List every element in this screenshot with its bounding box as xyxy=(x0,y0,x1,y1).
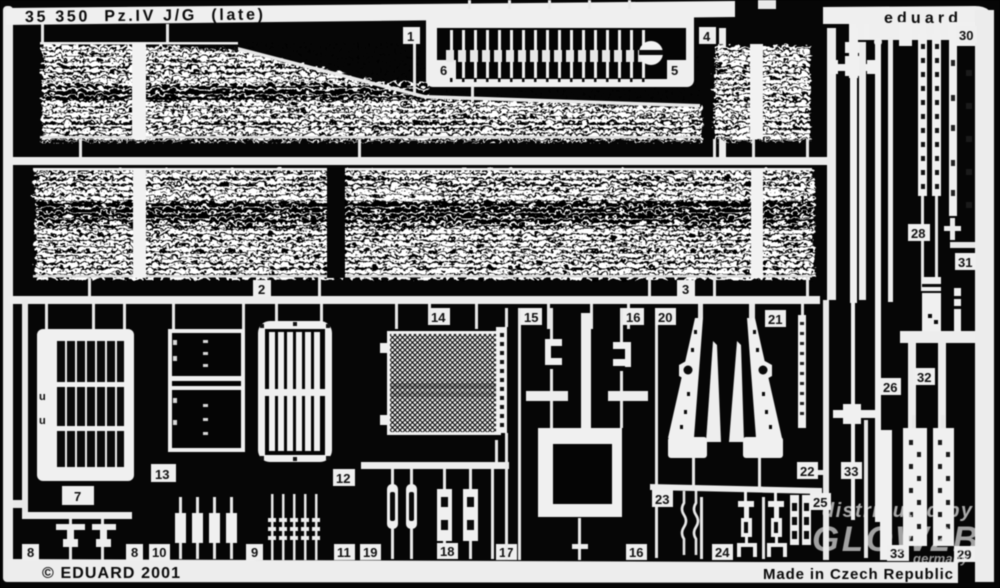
svg-text:11: 11 xyxy=(337,545,351,560)
svg-text:5: 5 xyxy=(671,63,678,78)
svg-text:© EDUARD 2001: © EDUARD 2001 xyxy=(42,565,180,582)
svg-text:germany: germany xyxy=(912,551,969,566)
svg-text:22: 22 xyxy=(800,464,814,479)
svg-text:1: 1 xyxy=(407,29,414,44)
svg-text:33: 33 xyxy=(844,464,858,479)
svg-text:3: 3 xyxy=(682,282,689,297)
svg-text:2: 2 xyxy=(258,282,265,297)
svg-text:19: 19 xyxy=(363,545,377,560)
svg-text:35 350 Pz.IV J/G (late): 35 350 Pz.IV J/G (late) xyxy=(25,7,263,26)
svg-text:15: 15 xyxy=(524,310,538,325)
svg-text:6: 6 xyxy=(440,63,447,78)
svg-text:distributed by: distributed by xyxy=(822,500,973,522)
svg-text:20: 20 xyxy=(658,310,672,325)
svg-text:8: 8 xyxy=(131,545,138,560)
svg-text:4: 4 xyxy=(703,29,711,44)
svg-text:8: 8 xyxy=(27,545,34,560)
svg-text:10: 10 xyxy=(152,545,166,560)
svg-text:30: 30 xyxy=(959,28,973,43)
svg-text:28: 28 xyxy=(911,226,925,241)
svg-text:24: 24 xyxy=(715,545,730,560)
svg-text:u: u xyxy=(39,391,46,403)
svg-text:12: 12 xyxy=(336,471,350,486)
svg-text:16: 16 xyxy=(629,545,643,560)
svg-text:Made in Czech Republic: Made in Czech Republic xyxy=(763,566,953,583)
svg-text:31: 31 xyxy=(958,255,972,270)
svg-text:26: 26 xyxy=(883,380,897,395)
svg-text:18: 18 xyxy=(440,544,454,559)
svg-text:32: 32 xyxy=(917,370,931,385)
svg-text:23: 23 xyxy=(655,492,669,507)
svg-text:14: 14 xyxy=(431,310,446,325)
svg-text:16: 16 xyxy=(626,310,640,325)
svg-text:7: 7 xyxy=(74,489,81,504)
svg-text:u: u xyxy=(39,415,46,427)
svg-text:13: 13 xyxy=(155,467,169,482)
svg-text:9: 9 xyxy=(251,545,258,560)
svg-text:21: 21 xyxy=(768,312,782,327)
